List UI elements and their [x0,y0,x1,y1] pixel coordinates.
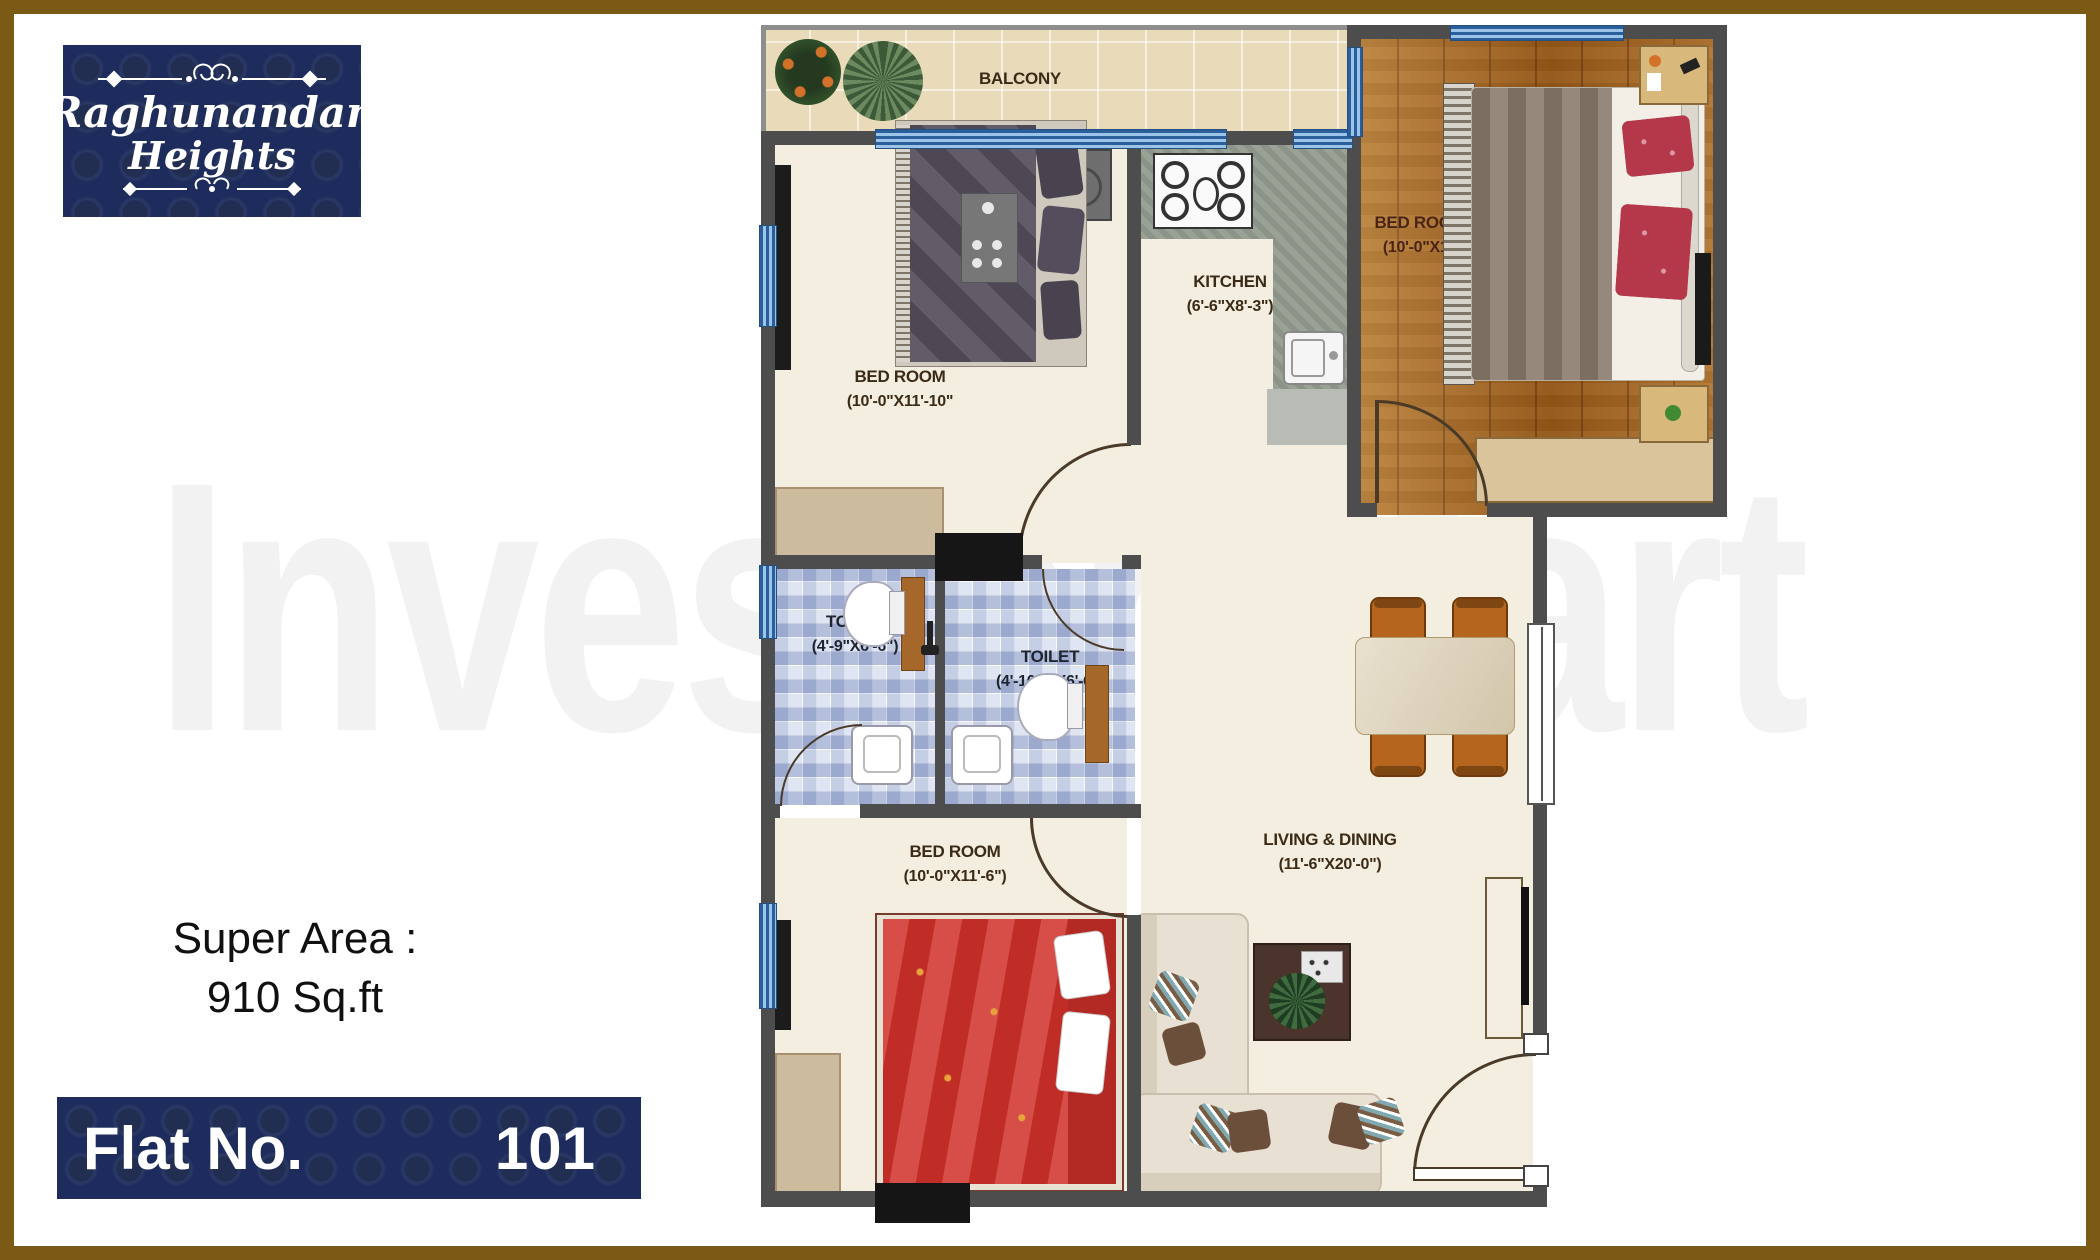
room-name: BED ROOM [855,840,1055,865]
chair-back [1374,766,1422,775]
label-living-dining: LIVING & DINING (11'-6"X20'-0") [1210,828,1450,876]
logo-line1: Raghunandan [48,91,377,135]
burner-icon [1161,161,1189,189]
flourish-top-icon [92,61,332,91]
door-bedroom2-leaf [1375,400,1379,503]
toilet-right-counter [1085,665,1109,763]
room-name: LIVING & DINING [1210,828,1450,853]
label-balcony: BALCONY [920,67,1120,92]
room-dims: (10'-0"X11'-6") [855,865,1055,888]
room-name: BALCONY [920,67,1120,92]
wall-bedroom3-right-a [1127,804,1141,818]
closet-bedroom3 [775,1053,841,1195]
door-entry-hinge-top [1523,1033,1549,1055]
pillow-icon [1055,1011,1111,1096]
kitchen-platform [1267,389,1347,445]
bed-bedroom2 [1471,87,1705,381]
room-name: BED ROOM [805,365,995,390]
window-bedroom2-left [1347,47,1363,137]
basin-inner [963,735,1001,773]
bed-edge-ruffle [896,125,910,362]
nightstand-top [1639,45,1709,105]
room-name: KITCHEN [1140,270,1320,295]
window-bedroom3-left [759,903,777,1009]
headboard-panel-bedroom2 [1695,253,1711,365]
closet-bedroom2 [1475,437,1717,503]
window-toilet-left [759,565,777,639]
window-bedroom1-left [759,225,777,327]
chair-back [1374,599,1422,608]
balcony-wall-left [761,25,766,135]
wall-bedroom3-right-b [1127,915,1141,1191]
window-mullion [1541,627,1543,801]
shower-head-icon [921,645,939,655]
wardrobe-bedroom1 [775,165,791,370]
pillow-icon [1040,280,1082,341]
tv-icon [1521,887,1529,1005]
decor-icon [1647,73,1661,91]
bed-runner [961,193,1018,283]
basin-inner [863,735,901,773]
tv-unit [1485,877,1523,1039]
super-area-text: Super Area : 910 Sq.ft [105,909,485,1028]
plant-icon [1269,973,1325,1029]
floor-plan: BALCONY BED ROOM (10'-0"X11'-10" KITCHEN… [755,25,1730,1207]
flat-number: 101 [495,1114,595,1183]
sink-icon [1283,331,1345,385]
dot-icon [992,240,1002,250]
window-living-right [1527,623,1555,805]
burner-icon [1161,193,1189,221]
wall-toilets-bottom-a [761,804,780,818]
label-bedroom-top-left: BED ROOM (10'-0"X11'-10" [805,365,995,413]
faucet-icon [1329,351,1338,360]
plant-icon [1665,405,1681,421]
flat-banner: Flat No. 101 [57,1097,641,1199]
wall-bedroom2-bottom-a [1347,503,1377,517]
window-bedroom2-top [1450,25,1624,41]
logo-line2: Heights [128,135,296,177]
window-balcony [875,129,1227,149]
plant-icon [843,41,923,121]
balcony-wall-top [761,25,1353,30]
wardrobe-bedroom3 [775,920,791,1030]
dot-icon [992,258,1002,268]
washbasin-icon [951,725,1013,785]
super-area-line2: 910 Sq.ft [105,968,485,1027]
room-dims: (10'-0"X11'-10" [805,390,995,413]
wall-bedroom1-kitchen [1127,131,1141,445]
sofa-backrest [1135,1173,1380,1193]
chair-back [1456,599,1504,608]
wc-tank [889,591,905,635]
dot-icon [972,258,982,268]
chair-back [1456,766,1504,775]
wall-bedroom2-right [1713,25,1727,517]
wall-bedroom2-bottom-b [1487,503,1727,517]
burner-center-icon [1193,177,1219,211]
pillow-icon [1226,1108,1271,1153]
wall-toilet-divider [935,569,945,805]
label-kitchen: KITCHEN (6'-6"X8'-3") [1140,270,1320,318]
ac-ledge-bedroom1 [935,533,1023,581]
sink-basin [1291,339,1325,377]
room-dims: (6'-6"X8'-3") [1140,295,1320,318]
dot-icon [982,202,994,214]
pillow-icon [1615,204,1693,301]
closet-bedroom1 [775,487,944,561]
pillow-icon [1037,205,1086,275]
bed2-blanket [1472,88,1612,380]
bed-bedroom1 [895,120,1087,367]
room-dims: (11'-6"X20'-0") [1210,853,1450,876]
dot-icon [972,240,982,250]
wall-bedroom1-bottom-b [1122,555,1141,569]
nightstand-bottom [1639,385,1709,443]
pillow-icon [1053,930,1111,1000]
decor-icon [1649,55,1661,67]
pillow-icon [1621,115,1694,178]
dining-table [1355,637,1515,735]
burner-icon [1217,193,1245,221]
flat-label: Flat No. [83,1114,303,1183]
decor-icon [1680,58,1701,75]
ac-unit-bedroom3 [875,1183,970,1223]
wall-toilets-bottom-b [860,804,1141,818]
burner-icon [1217,161,1245,189]
coffee-table [1253,943,1351,1041]
wc-tank [1067,683,1083,729]
flourish-bottom-icon [117,177,307,201]
door-entry-leaf [1413,1167,1537,1181]
brand-logo: Raghunandan Heights [63,45,361,217]
window-kitchen [1293,129,1353,149]
door-entry-hinge-bottom [1523,1165,1549,1187]
super-area-line1: Super Area : [105,909,485,968]
bed-bedroom3 [875,913,1124,1192]
brochure-page: Investor Mart Raghunandan Heights [14,14,2086,1246]
plant-icon [775,39,841,105]
stove-icon [1153,153,1253,229]
bed3-blanket [883,919,1068,1184]
label-bedroom-bottom: BED ROOM (10'-0"X11'-6") [855,840,1055,888]
